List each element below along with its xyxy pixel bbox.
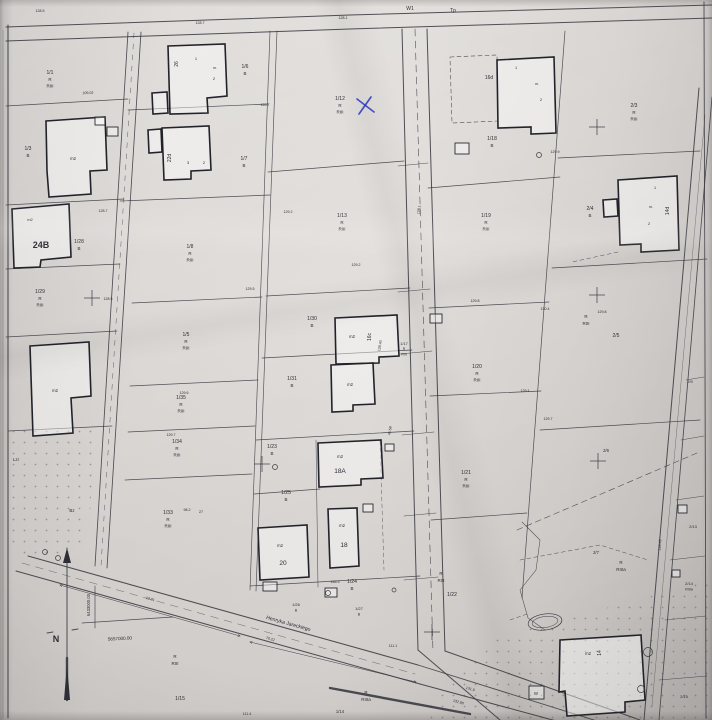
parcel-class-label: B [270, 451, 273, 456]
map-label: m2 [337, 454, 343, 459]
orchard-area [10, 424, 95, 560]
parcel-label: 1/18 [487, 136, 497, 142]
survey-point-circle [392, 588, 396, 592]
parcel-class-label: R [340, 220, 344, 225]
building-outline [603, 199, 618, 217]
map-label: m2 [339, 523, 345, 528]
map-label: m. [535, 82, 539, 86]
boundary-line [429, 302, 549, 308]
shed-outline [325, 588, 337, 597]
parcel-class-label: R [338, 103, 342, 108]
map-label: 18 [340, 542, 348, 549]
dimension-label: 128.49 [658, 539, 663, 550]
parcel-label: 1/21 [461, 470, 471, 476]
parcel-label: 1/6 [242, 64, 249, 70]
dimension-label: 129.2 [284, 210, 293, 214]
boundary-line [572, 252, 618, 262]
boundary-line [540, 420, 700, 430]
cadastral-map: 1/1RRIII1/3B1/28B1/29RRIII1/6B1/7B1/8RRI… [0, 0, 712, 720]
parcel-class-label: RIII [482, 227, 489, 232]
parcel-label: 1/22 [447, 592, 457, 598]
survey-point-circle [56, 556, 61, 561]
shed-outline [363, 504, 373, 512]
parcel-class-label: RIII [173, 453, 180, 458]
map-label: RIII [171, 661, 178, 666]
dimension-label: 98.2 [184, 508, 191, 512]
dimension-label: 128.1 [339, 16, 348, 20]
boundary-line [125, 474, 252, 480]
parcel-label: 1/5 [183, 332, 190, 338]
boundary-line [128, 426, 255, 432]
map-label: 16c [367, 332, 373, 341]
dimension-label: 12.81 [145, 596, 155, 602]
map-label: m2 [52, 388, 58, 393]
boundary-line [6, 5, 712, 27]
dimension-label: 45.58 [387, 426, 393, 436]
boundary-line [402, 29, 418, 650]
map-label: 5657000.00 [108, 635, 133, 641]
dimension-label: 129.2 [352, 263, 361, 267]
dimension-label: 128.7 [99, 209, 108, 213]
building-outline [30, 342, 91, 436]
map-label: 26 [174, 61, 180, 67]
building-outline [497, 57, 556, 134]
map-label: RIII [582, 321, 589, 326]
dimension-label: 130.4 [541, 307, 550, 311]
map-label: 2 [648, 222, 650, 226]
shed-outline [107, 127, 118, 136]
dimension-label: 111.1 [389, 644, 397, 648]
boundary-line [130, 380, 258, 386]
parcel-class-label: R [175, 446, 179, 451]
shed-outline [263, 582, 277, 591]
boundary-line [398, 289, 430, 292]
boundary-line [6, 18, 712, 41]
map-label: 1 [654, 186, 656, 190]
boundary-line [558, 151, 700, 158]
parcel-class-label: B [242, 163, 245, 168]
parcel-class-label: B [290, 383, 293, 388]
dimension-label: 129.7 [544, 417, 553, 421]
parcel-label: 1/17 [400, 342, 407, 346]
dimension-label: 129.5 [246, 287, 255, 291]
map-label: m. [213, 66, 217, 70]
parcel-label: 1/24 [347, 579, 357, 585]
pen-mark-x-stroke [359, 97, 371, 114]
parcel-class-label: R [48, 77, 52, 82]
boundary-line [47, 632, 53, 633]
building-outline [148, 129, 162, 153]
parcel-class-label: RIII [336, 110, 343, 115]
map-label: m2 [349, 334, 355, 339]
map-label: 24B [33, 240, 50, 250]
boundary-line [415, 29, 433, 652]
boundary-line [517, 453, 697, 530]
dimension-label: 128.7 [196, 21, 205, 25]
survey-point-circle [537, 153, 542, 158]
parcel-label: 2/7 [593, 550, 599, 555]
pen-mark-x [357, 97, 374, 114]
north-arrow-head [64, 664, 70, 700]
parcel-label: 2/13 [689, 524, 698, 529]
map-label: m2 [585, 651, 591, 656]
building-outline [318, 440, 383, 487]
dimension-label: 129.8 [598, 310, 607, 314]
building-outline [162, 126, 211, 180]
map-label: R [619, 560, 623, 565]
measure-arrow [250, 642, 416, 682]
map-label: m2 [347, 382, 353, 387]
map-label: RIII [437, 578, 444, 583]
dimension-label: 111.4 [243, 712, 251, 716]
parcel-class-label: RIII [46, 84, 53, 89]
map-label: Tp [450, 8, 456, 14]
dimension-label: 146.3 [331, 580, 340, 584]
parcel-class-label: B [350, 586, 353, 591]
boundary-line [72, 629, 78, 630]
parcel-class-label: B [77, 246, 80, 251]
map-label: m2 [70, 156, 76, 161]
parcel-class-label: R [38, 296, 42, 301]
boundary-line [132, 297, 262, 303]
parcel-class-label: R [484, 220, 488, 225]
boundary-line [427, 29, 445, 651]
map-label: 14d [665, 207, 671, 216]
boundary-line [681, 436, 704, 440]
boundary-line [6, 331, 117, 337]
map-label: N [53, 634, 60, 644]
parcel-class-label: R [166, 517, 170, 522]
shed-outline [430, 314, 442, 323]
dimension-label: 109.02 [82, 91, 93, 95]
parcel-class-label: RIII [338, 227, 345, 232]
parcel-class-label: B [243, 71, 246, 76]
map-label: W1 [406, 6, 414, 12]
parcel-label: 2/14 [685, 581, 694, 586]
shed-outline [95, 117, 105, 125]
building-outline [331, 363, 375, 412]
parcel-class-label: R [179, 402, 183, 407]
map-label: Bz [69, 508, 75, 513]
parcel-label: 2/15 [680, 694, 689, 699]
map-label: W [534, 691, 538, 696]
map-label: RIIIa [361, 697, 371, 702]
dimension-label: 128.1 [416, 205, 422, 215]
map-label: 20 [279, 560, 287, 567]
parcel-class-label: RIII [630, 117, 637, 122]
map-label: m2 [277, 543, 283, 548]
map-label: 22d [167, 154, 173, 163]
parcel-label: 1/31 [287, 376, 297, 382]
parcel-label: 1/23 [267, 444, 277, 450]
parcel-class-label: R [188, 251, 192, 256]
boundary-line [402, 432, 434, 435]
boundary-line [250, 31, 270, 590]
parcel-label: 1/33 [163, 510, 173, 516]
dimension-label: 128.5 [104, 297, 113, 301]
parcel-class-label: R [464, 477, 468, 482]
shed-outline [672, 570, 680, 577]
photo-of-paper-map: 1/1RRIII1/3B1/28B1/29RRIII1/6B1/7B1/8RRI… [0, 0, 712, 720]
dimension-label: 27 [199, 510, 203, 514]
parcel-label: 1/15 [175, 696, 185, 702]
map-label: R [173, 654, 177, 659]
boundary-line [266, 288, 410, 296]
parcel-class-label: B [358, 612, 361, 616]
parcel-label: 1/26 [292, 602, 301, 607]
boundary-line [450, 55, 498, 123]
map-label: m. [649, 205, 653, 209]
parcel-class-label: RIIIa [685, 587, 693, 591]
shed-outline [678, 505, 687, 513]
parcel-label: 1/14 [336, 709, 345, 714]
parcel-class-label: B [295, 608, 298, 612]
building-outline [328, 508, 359, 568]
shed-outline [385, 444, 394, 451]
boundary-line [120, 195, 270, 201]
parcel-class-label: RIII [177, 409, 184, 414]
parcel-label: 1/25 [281, 490, 291, 496]
dimension-label: 129.1 [521, 389, 530, 393]
boundary-line [676, 496, 704, 500]
boundary-line [670, 556, 705, 560]
map-label: R [584, 314, 588, 319]
parcel-class-label: B [284, 497, 287, 502]
map-label: 16d [485, 75, 494, 81]
parcel-label: 1/27 [355, 606, 364, 611]
parcel-label: 1/19 [481, 213, 491, 219]
parcel-label: 1/29 [35, 289, 45, 295]
parcel-label: 1/30 [307, 316, 317, 322]
building-outline [168, 44, 227, 114]
parcel-label: 1/12 [335, 96, 345, 102]
boundary-line [256, 31, 277, 591]
dimension-label: 129.7 [167, 433, 176, 437]
parcel-class-label: R [475, 371, 479, 376]
parcel-label: 1/34 [172, 439, 182, 445]
parcel-class-label: RIII [462, 484, 469, 489]
map-label: RIIIa [616, 567, 626, 572]
parcel-label: 1/13 [337, 213, 347, 219]
map-label: 2 [540, 98, 542, 102]
parcel-label: 2/9 [687, 379, 693, 384]
parcel-label: 1/35 [176, 395, 186, 401]
building-outline [12, 204, 71, 268]
building-outline [258, 525, 309, 580]
boundary-line [82, 617, 173, 623]
parcel-class-label: B [26, 153, 29, 158]
dimension-label: 129.8 [471, 299, 480, 303]
parcel-class-label: RIII [164, 524, 171, 529]
map-label: 14 [597, 650, 603, 656]
shed-outline [455, 143, 469, 154]
parcel-label: 1/1 [47, 70, 54, 76]
boundary-line [404, 577, 438, 580]
boundary-line [404, 513, 436, 516]
parcel-class-label: R [632, 110, 636, 115]
parcel-label: 2/4 [587, 206, 594, 212]
parcel-label: 1/3 [25, 146, 32, 152]
boundary-line [510, 614, 527, 620]
parcel-class-label: RIII [186, 258, 193, 263]
boundary-line [428, 177, 560, 188]
survey-point-circle [273, 465, 278, 470]
map-label: Lzr [13, 457, 20, 462]
parcel-class-label: RIII [36, 303, 43, 308]
map-label: 1 [515, 66, 517, 70]
parcel-class-label: RIII [182, 346, 189, 351]
map-label: 6433000.00 [86, 593, 91, 616]
parcel-label: 2/3 [631, 103, 638, 109]
parcel-class-label: B [588, 213, 591, 218]
parcel-class-label: B [310, 323, 313, 328]
dimension-label: 128.5 [36, 9, 45, 13]
boundary-line [6, 99, 128, 106]
parcel-label: 2/5 [613, 333, 620, 339]
boundary-line [398, 163, 428, 166]
parcel-class-label: R [184, 339, 188, 344]
map-label: 18A [334, 468, 346, 475]
dimension-label: 126.7 [261, 103, 270, 107]
building-outline [46, 117, 107, 197]
boundary-line [16, 571, 420, 684]
dimension-label: 129.6 [180, 391, 189, 395]
parcel-label: 2/6 [603, 448, 609, 453]
boundary-line [431, 513, 527, 520]
building-outline [152, 92, 168, 114]
parcel-class-label: RIII [401, 352, 406, 356]
parcel-label: 1/7 [241, 156, 248, 162]
parcel-label: 1/28 [74, 239, 84, 245]
parcel-label: 1/20 [472, 364, 482, 370]
parcel-class-label: B [490, 143, 493, 148]
parcel-class-label: RIII [473, 378, 480, 383]
map-label: m2 [27, 217, 33, 222]
boundary-line [268, 161, 404, 172]
dimension-label: 129.9 [551, 150, 560, 154]
parcel-label: 1/8 [187, 244, 194, 250]
